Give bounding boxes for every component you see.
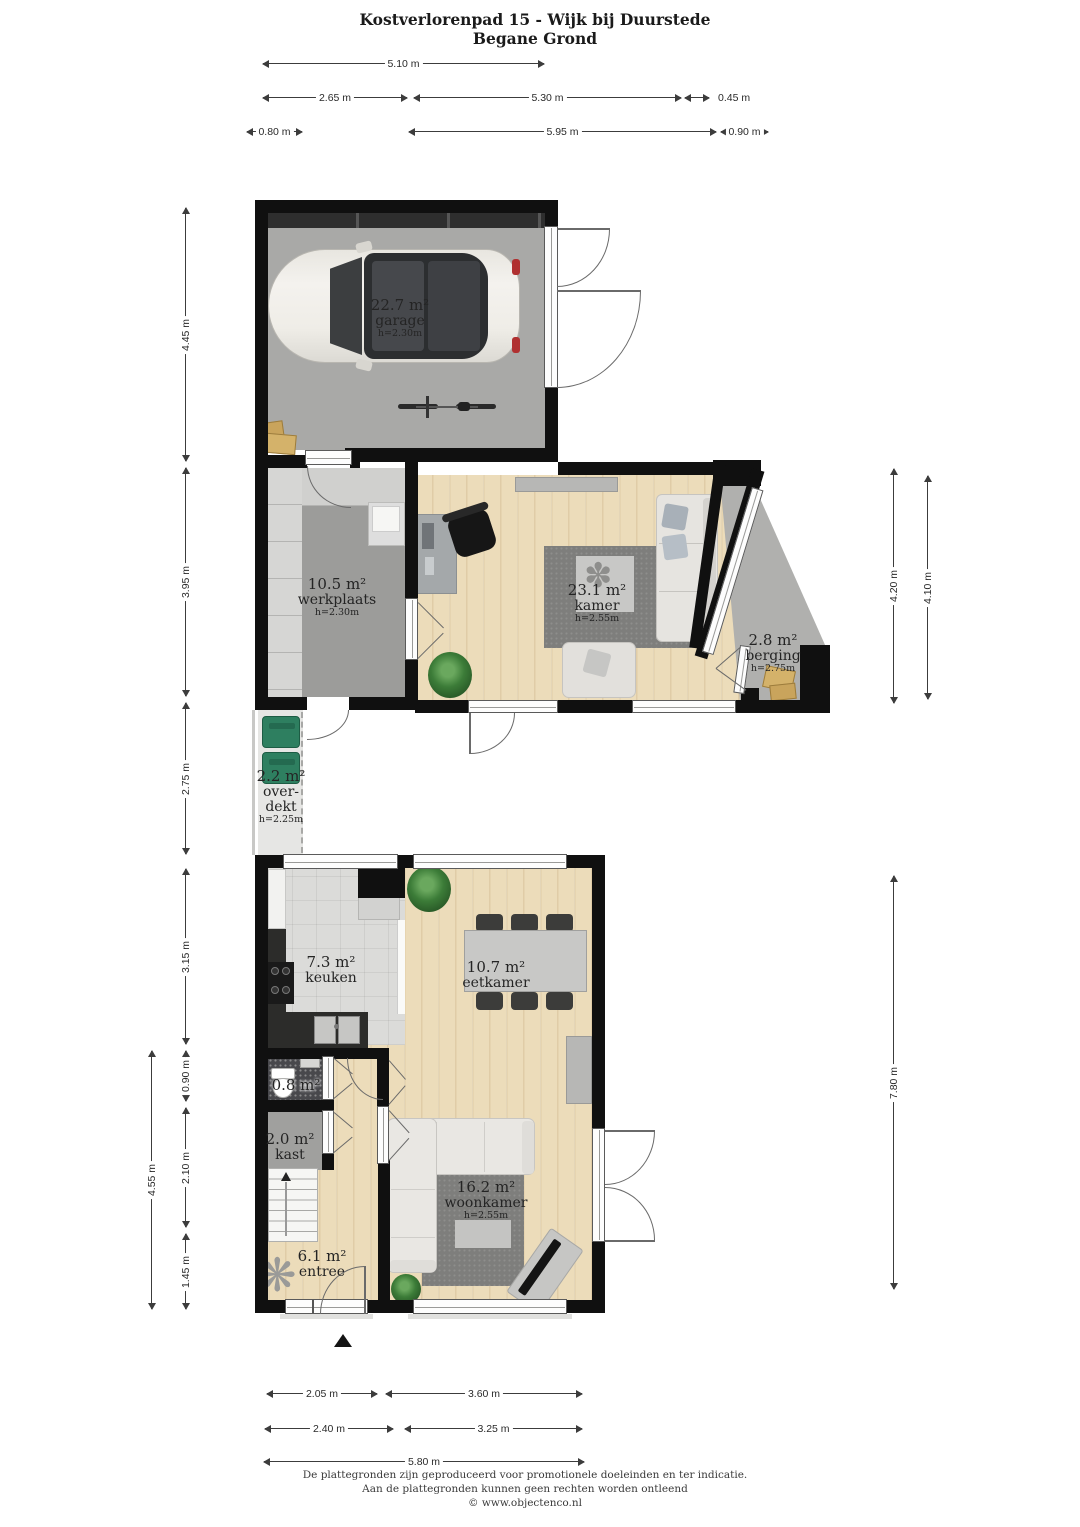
wall: [255, 855, 268, 1313]
window: [632, 700, 736, 713]
wall: [378, 1160, 390, 1313]
burner: [271, 967, 279, 975]
floorplan-page: Kostverlorenpad 15 - Wijk bij Duurstede …: [0, 0, 1080, 1527]
dimension-2.05m: 2.05 m: [266, 1388, 378, 1400]
window: [468, 700, 558, 713]
room-label-keuken: 7.3 m² keuken: [305, 954, 357, 986]
faucet: [334, 1024, 339, 1029]
room-name: keuken: [305, 971, 357, 986]
wall: [255, 697, 307, 710]
dimension-5.95m: 5.95 m: [408, 126, 717, 138]
garage-door-frame: [544, 226, 558, 388]
kitchen-sink: [338, 1016, 360, 1044]
sofa-seam: [391, 1237, 435, 1238]
room-area: 2.2 m²: [257, 768, 306, 785]
room-height: h=2.75m: [745, 664, 800, 674]
room-height: h=2.55m: [568, 614, 626, 624]
disclaimer: De plattegronden zijn geproduceerd voor …: [303, 1468, 748, 1511]
window: [413, 1299, 567, 1314]
disclaimer-line1: De plattegronden zijn geproduceerd voor …: [303, 1468, 748, 1482]
waste-bin: [262, 716, 300, 748]
room-area: 7.3 m²: [305, 954, 357, 971]
plant: [407, 866, 451, 912]
car-sunroof: [428, 261, 480, 351]
dimension-4.10m: 4.10 m: [922, 475, 934, 700]
sofa-seam: [484, 1122, 485, 1172]
dimension-0.90m-top: 0.90 m: [720, 126, 769, 138]
dimension-3.60m: 3.60 m: [385, 1388, 583, 1400]
bicycle-seat: [458, 402, 470, 411]
room-label-kamer: 23.1 m² kamer h=2.55m: [568, 582, 626, 624]
burner: [282, 967, 290, 975]
stairs-direction-arrow-icon: [281, 1172, 291, 1181]
dimension-2.65m: 2.65 m: [262, 92, 408, 104]
window: [283, 854, 398, 869]
room-label-kast: 2.0 m² kast: [266, 1131, 315, 1163]
room-label-eetkamer: 10.7 m² eetkamer: [462, 959, 529, 991]
room-area: 16.2 m²: [445, 1179, 528, 1196]
armchair: [562, 642, 636, 698]
wall: [558, 700, 632, 713]
dimension-5.10m: 5.10 m: [262, 58, 545, 70]
room-label-werkplaats: 10.5 m² werkplaats h=2.30m: [298, 576, 376, 618]
wall: [255, 1300, 285, 1313]
bin-lid: [269, 759, 295, 765]
burner: [282, 986, 290, 994]
wall: [800, 645, 830, 713]
room-area: 6.1 m²: [298, 1248, 347, 1265]
car-taillight: [512, 337, 520, 353]
overdekt-edge: [252, 710, 255, 855]
storage-boxes: [769, 683, 797, 702]
entrance-arrow-icon: [334, 1334, 352, 1347]
window-sill: [408, 1314, 572, 1319]
room-label-woonkamer: 16.2 m² woonkamer h=2.55m: [445, 1179, 528, 1221]
dining-chair: [511, 992, 538, 1010]
pillow: [661, 503, 689, 531]
desk-keyboard: [425, 557, 434, 575]
room-area: 10.5 m²: [298, 576, 376, 593]
sofa-seam: [391, 1189, 435, 1190]
room-name: entree: [298, 1265, 347, 1280]
door-arc: [470, 713, 515, 754]
werkplaats-machine: [372, 506, 400, 532]
wall: [405, 462, 418, 602]
plant: [428, 652, 472, 698]
wall: [358, 868, 405, 898]
door-frame: [377, 1106, 389, 1164]
disclaimer-line2: Aan de plattegronden kunnen geen rechten…: [303, 1482, 748, 1496]
dimension-1.45m: 1.45 m: [180, 1233, 192, 1310]
wall: [255, 200, 558, 213]
dimension-0.80m: 0.80 m: [246, 126, 303, 138]
desk-monitor: [422, 523, 434, 549]
dimension-3.15m: 3.15 m: [180, 868, 192, 1045]
room-label-berging: 2.8 m² berging h=2.75m: [745, 632, 800, 674]
door-frame: [322, 1110, 334, 1154]
room-height: h=2.25m: [257, 815, 306, 825]
car-taillight: [512, 259, 520, 275]
title-address: Kostverlorenpad 15 - Wijk bij Duurstede: [360, 10, 711, 29]
door-frame: [322, 1056, 334, 1100]
dimension-0.90m-left: 0.90 m: [180, 1050, 192, 1102]
dimension-4.55m: 4.55 m: [146, 1050, 158, 1310]
bicycle: [396, 390, 498, 424]
page-title: Kostverlorenpad 15 - Wijk bij Duurstede …: [360, 10, 711, 49]
dimension-0.45m: 0.45 m: [684, 92, 710, 104]
room-label-toilet: 0.8 m²: [272, 1077, 321, 1094]
bin-lid: [269, 723, 295, 729]
room-name: werkplaats: [298, 592, 376, 607]
room-height: h=2.55m: [445, 1211, 528, 1221]
sliding-door: [305, 450, 352, 465]
door-arc: [557, 229, 610, 287]
room-name: woonkamer: [445, 1195, 528, 1210]
room-name: kast: [266, 1148, 315, 1163]
kitchen-sink: [314, 1016, 336, 1044]
dining-chair: [476, 992, 503, 1010]
french-door-frame: [592, 1128, 605, 1242]
wall: [255, 455, 268, 710]
stove: [268, 962, 294, 1004]
room-name: over-: [257, 785, 306, 800]
copyright: © www.objectenco.nl: [303, 1496, 748, 1510]
kitchen-pass: [397, 920, 405, 1014]
dimension-2.40m: 2.40 m: [264, 1423, 394, 1435]
pillow: [661, 533, 688, 560]
dining-chair: [546, 992, 573, 1010]
storage-boxes: [265, 433, 297, 456]
stairs: [268, 1168, 318, 1242]
fridge: [268, 869, 286, 929]
burner: [271, 986, 279, 994]
room-name: garage: [371, 313, 429, 328]
room-area: 22.7 m²: [371, 297, 429, 314]
wall: [415, 700, 470, 713]
rug-center: [455, 1220, 511, 1248]
wall: [368, 1300, 413, 1313]
dimension-3.95m: 3.95 m: [180, 467, 192, 697]
window: [413, 854, 567, 869]
door-leaf: [605, 1240, 655, 1242]
room-name: kamer: [568, 598, 626, 613]
sideboard: [515, 477, 618, 492]
dimension-4.20m: 4.20 m: [888, 468, 900, 704]
sofa-armrest: [390, 1260, 436, 1272]
sideboard: [566, 1036, 592, 1104]
title-floor: Begane Grond: [360, 29, 711, 48]
dimension-5.80m: 5.80 m: [263, 1456, 585, 1468]
room-label-garage: 22.7 m² garage h=2.30m: [371, 297, 429, 339]
window-sill: [280, 1314, 373, 1319]
wall: [345, 448, 558, 462]
wall: [255, 200, 268, 468]
wall: [567, 1300, 605, 1313]
room-area: 23.1 m²: [568, 582, 626, 599]
room-label-overdekt: 2.2 m² over- dekt h=2.25m: [257, 768, 306, 826]
door-arc: [307, 710, 349, 740]
dimension-2.75m: 2.75 m: [180, 702, 192, 855]
sofa-armrest: [522, 1121, 534, 1174]
garage-door-track: [268, 213, 545, 228]
dimension-3.25m: 3.25 m: [404, 1423, 583, 1435]
room-height: h=2.30m: [371, 329, 429, 339]
door-frame: [405, 598, 418, 660]
room-name: berging: [745, 648, 800, 663]
dimension-4.45m: 4.45 m: [180, 207, 192, 462]
wall: [592, 855, 605, 1130]
room-area: 0.8 m²: [272, 1077, 321, 1094]
sofa: [387, 1118, 437, 1273]
stairs-arrow-shaft: [285, 1182, 287, 1236]
pillow: [582, 648, 611, 677]
room-area: 2.0 m²: [266, 1131, 315, 1148]
door-arc: [605, 1187, 655, 1240]
wall: [398, 855, 413, 868]
kitchen-counter-peninsula: [358, 896, 400, 920]
door-jamb: [312, 1300, 314, 1313]
room-name: eetkamer: [462, 976, 529, 991]
room-label-entree: 6.1 m² entree: [298, 1248, 347, 1280]
door-arc: [605, 1131, 655, 1185]
room-area: 10.7 m²: [462, 959, 529, 976]
car-windshield: [330, 257, 362, 355]
dimension-5.30m: 5.30 m: [413, 92, 682, 104]
room-name: dekt: [257, 800, 306, 815]
dimension-2.10m: 2.10 m: [180, 1107, 192, 1228]
dimension-7.80m: 7.80 m: [888, 875, 900, 1290]
room-area: 2.8 m²: [745, 632, 800, 649]
door-arc: [557, 291, 641, 388]
bicycle-handlebar: [426, 396, 429, 418]
room-height: h=2.30m: [298, 608, 376, 618]
